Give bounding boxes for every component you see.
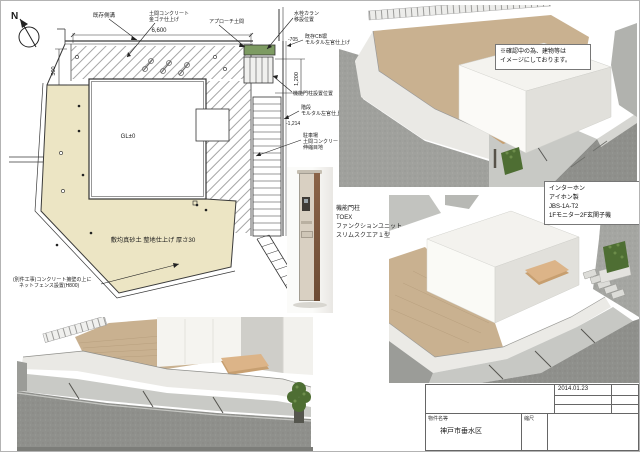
titleblock-project-value: 神戸市垂水区 bbox=[440, 426, 482, 436]
render-note-line2: イメージにしております。 bbox=[500, 57, 586, 66]
intercom-screen bbox=[304, 199, 308, 203]
titleblock-vline-3 bbox=[521, 413, 522, 451]
label-approach: アプローチ土間 bbox=[209, 18, 244, 25]
product-name: 機能門柱 bbox=[336, 205, 412, 214]
dim-top: 6,600 bbox=[151, 28, 167, 34]
interphone-note-box: インターホン アイホン製 JBS-1A-T2 1Fモニター2F玄関子機 bbox=[544, 181, 640, 225]
product-brand: TOEX bbox=[336, 214, 412, 223]
label-water-1: 水栓カラン bbox=[294, 10, 319, 17]
nameplate-slot bbox=[301, 221, 312, 224]
render-top-right bbox=[339, 5, 637, 187]
plan-stairs bbox=[253, 97, 281, 236]
level-b: -1,214 bbox=[286, 121, 300, 127]
titleblock-hline-mid bbox=[425, 413, 639, 414]
dim-left: 500 bbox=[51, 66, 57, 75]
product-photo bbox=[287, 167, 333, 313]
label-boundary: 既存側溝 bbox=[93, 11, 116, 19]
drawing-sheet: N bbox=[0, 0, 640, 452]
label-stair-1: 階段 bbox=[301, 104, 311, 111]
label-wall-1: 既存CB塀 bbox=[305, 33, 327, 40]
label-park-3: 伸縮目地 bbox=[303, 144, 323, 151]
center-level: GL±0 bbox=[121, 134, 136, 140]
titleblock-hline-2 bbox=[554, 404, 639, 405]
titleblock-vline-4 bbox=[547, 413, 548, 451]
titleblock-hline-1 bbox=[554, 395, 639, 396]
dim-right: 1,200 bbox=[294, 72, 300, 86]
interphone-maker: アイホン製 bbox=[549, 194, 639, 203]
render-bottom-left bbox=[17, 317, 313, 451]
product-model: スリムスクエア１型 bbox=[336, 232, 412, 241]
label-park-1: 駐車場 bbox=[303, 132, 318, 139]
product-label: 機能門柱 TOEX ファンクションユニット スリムスクエア１型 bbox=[336, 205, 412, 241]
label-doma-1: 土間コンクリート bbox=[149, 10, 189, 17]
titleblock-project-label: 物件名等 bbox=[428, 415, 448, 422]
titleblock-scale-label: 縮尺 bbox=[524, 415, 534, 422]
render-note-line1: ※確認中の為、建物等は bbox=[500, 48, 586, 57]
titleblock-vline-2 bbox=[611, 384, 612, 413]
pillar-wood-strip bbox=[314, 173, 320, 301]
interphone-note: 1Fモニター2F玄関子機 bbox=[549, 212, 639, 221]
interphone-model: JBS-1A-T2 bbox=[549, 203, 639, 212]
hatch-upper-band bbox=[71, 46, 251, 79]
post-slot bbox=[301, 231, 313, 238]
label-gate: 機能門柱設置位置 bbox=[293, 90, 333, 97]
interphone-title: インターホン bbox=[549, 185, 639, 194]
titleblock-date: 2014.01.23 bbox=[558, 386, 588, 392]
label-fence-1: (別件工事)コンクリート擁壁の上に bbox=[13, 276, 91, 283]
titleblock-vline-1 bbox=[554, 384, 555, 413]
north-arrow-icon bbox=[19, 19, 39, 47]
label-fence-2: ネットフェンス設置(H800) bbox=[19, 282, 80, 289]
plan-gate-unit bbox=[244, 45, 275, 83]
intercom-module-icon bbox=[302, 197, 310, 211]
ground-note: 敷均真砂土 整地仕上げ 厚さ30 bbox=[111, 236, 196, 244]
product-series: ファンクションユニット bbox=[336, 223, 412, 232]
label-water-2: 移設位置 bbox=[294, 16, 314, 23]
label-doma-2: 金ゴテ仕上げ bbox=[149, 16, 179, 23]
pillar-shadow bbox=[293, 302, 327, 308]
label-park-2: 土間コンクリート bbox=[303, 138, 343, 145]
north-label: N bbox=[11, 11, 18, 22]
render-note-box: ※確認中の為、建物等は イメージにしております。 bbox=[495, 44, 591, 70]
